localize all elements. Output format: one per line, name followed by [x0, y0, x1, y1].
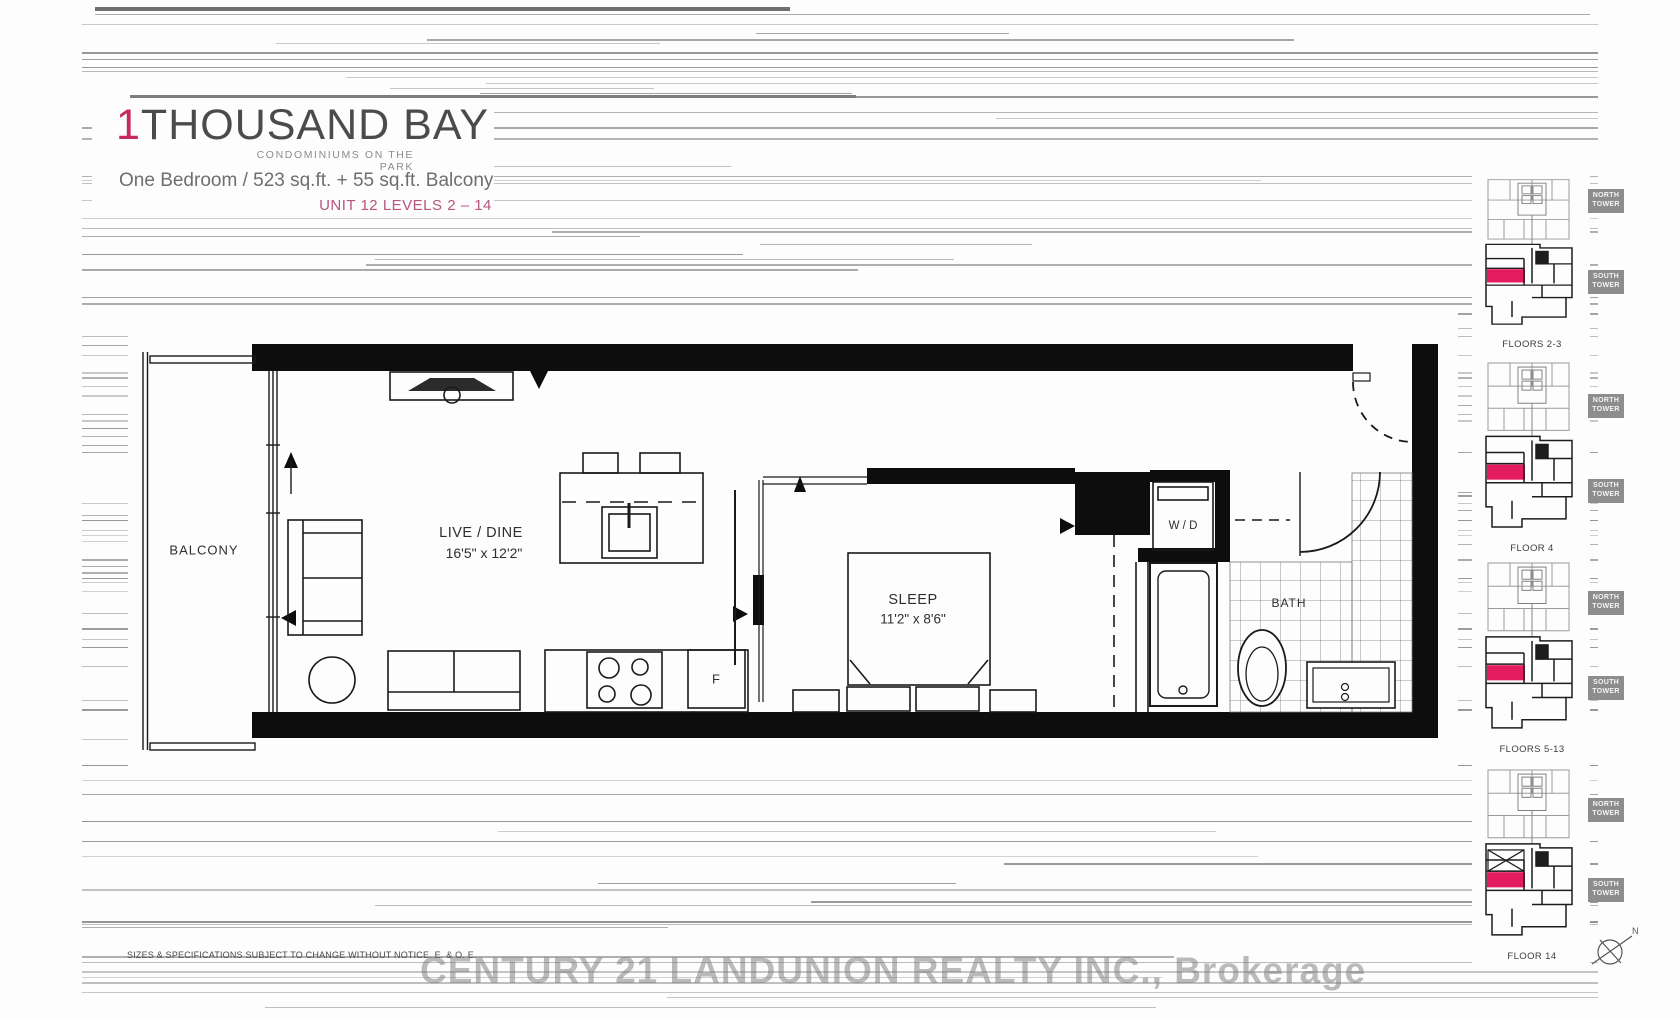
balcony-label: BALCONY [169, 543, 238, 558]
sleep-label: SLEEP [888, 592, 937, 608]
keyplan-floors-2-3: FLOORS 2-3 NORTH TOWER SOUTH TOWER [1476, 177, 1636, 367]
bathtub [1150, 563, 1217, 706]
sleep-dims: 11'2" x 8'6" [880, 612, 946, 627]
washer-dryer [1153, 482, 1213, 550]
tv [408, 378, 496, 391]
loveseat [388, 651, 520, 710]
armchair [288, 520, 362, 635]
vanity [1307, 662, 1395, 708]
compass-n-label: N [1632, 926, 1639, 936]
north-tower-tag: NORTH TOWER [1588, 394, 1624, 418]
closet-block [1075, 472, 1150, 535]
keyplan-label: FLOORS 5-13 [1476, 744, 1588, 755]
keyplan-label: FLOORS 2-3 [1476, 339, 1588, 350]
unit-line: UNIT 12 LEVELS 2 – 14 [308, 197, 503, 214]
entry-door [1353, 373, 1413, 442]
south-tower-tag: SOUTH TOWER [1588, 676, 1624, 700]
pillow [847, 687, 910, 711]
spec-line: One Bedroom / 523 sq.ft. + 55 sq.ft. Bal… [119, 170, 493, 192]
wd-label: W / D [1169, 520, 1198, 532]
wall-marker-icon [1060, 518, 1075, 534]
round-chair [309, 657, 355, 703]
stove [587, 652, 662, 708]
wall-marker-icon [530, 371, 548, 389]
toilet [1238, 630, 1286, 706]
title-rule [130, 95, 856, 98]
live-dine-label: LIVE / DINE [439, 525, 523, 541]
logo: 1THOUSAND BAY [116, 104, 489, 147]
kitchen-island [560, 453, 703, 563]
brokerage-watermark: CENTURY 21 LANDUNION REALTY INC., Broker… [420, 950, 1300, 992]
keyplan-drawing [1476, 177, 1588, 333]
keyplan-label: FLOOR 14 [1476, 951, 1588, 962]
door-jamb [1353, 373, 1370, 381]
bed [847, 553, 990, 711]
keyplan-drawing [1476, 767, 1588, 945]
south-tower-tag: SOUTH TOWER [1588, 270, 1624, 294]
north-tower-tag: NORTH TOWER [1588, 591, 1624, 615]
bath-label: BATH [1271, 596, 1306, 610]
pillow [916, 687, 979, 711]
keyplan-drawing [1476, 360, 1588, 537]
south-tower-tag: SOUTH TOWER [1588, 878, 1624, 902]
nightstand [793, 690, 839, 712]
fridge-label: F [712, 672, 720, 687]
logo-accent-1: 1 [116, 101, 141, 149]
north-tower-tag: NORTH TOWER [1588, 798, 1624, 822]
furniture [288, 372, 1290, 712]
compass-icon: N [1588, 924, 1640, 972]
nightstand [990, 690, 1036, 712]
floorplan-sheet: 1THOUSAND BAY CONDOMINIUMS ON THE PARK O… [0, 0, 1680, 1020]
keyplan-floor-4: FLOOR 4 NORTH TOWER SOUTH TOWER [1476, 360, 1636, 560]
keyplan-floors-5-13: FLOORS 5-13 NORTH TOWER SOUTH TOWER [1476, 560, 1636, 762]
entry-door-arc [1353, 382, 1413, 442]
south-tower-tag: SOUTH TOWER [1588, 479, 1624, 503]
north-tower-tag: NORTH TOWER [1588, 189, 1624, 213]
live-dine-dims: 16'5" x 12'2" [446, 545, 523, 561]
logo-name: THOUSAND BAY [141, 101, 489, 149]
keyplan-label: FLOOR 4 [1476, 543, 1588, 554]
keyplan-drawing [1476, 560, 1588, 738]
